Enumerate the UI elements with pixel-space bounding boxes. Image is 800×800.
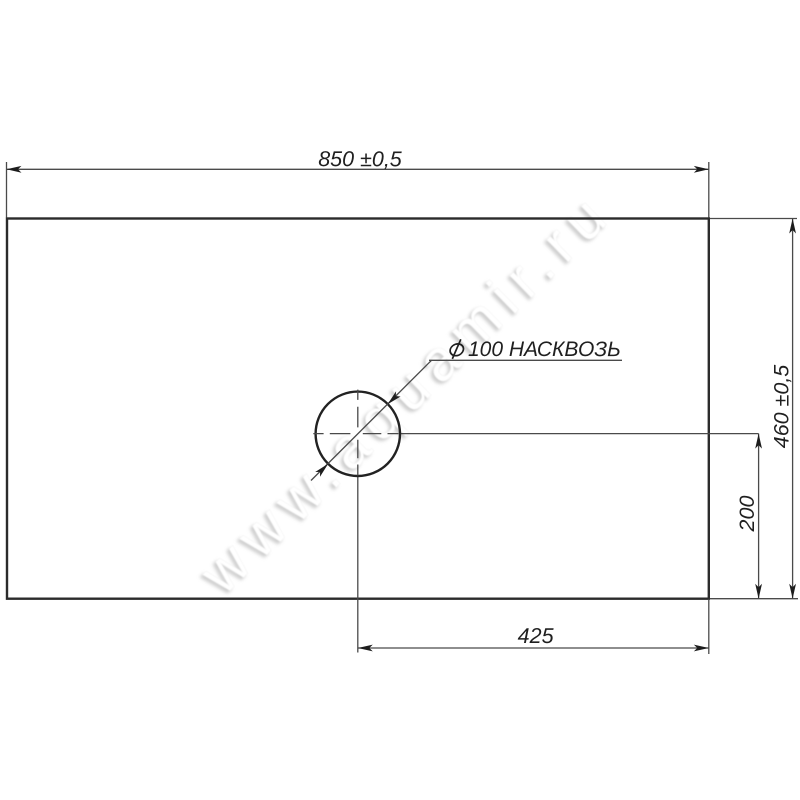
svg-text:850 ±0,5: 850 ±0,5 bbox=[318, 147, 403, 171]
svg-text:460 ±0,5: 460 ±0,5 bbox=[770, 364, 794, 449]
svg-text:200: 200 bbox=[735, 496, 759, 533]
svg-text:425: 425 bbox=[518, 624, 555, 648]
svg-text:www.aquamir.ru: www.aquamir.ru bbox=[187, 178, 625, 607]
svg-text:100 НАСКВОЗЬ: 100 НАСКВОЗЬ bbox=[468, 338, 621, 361]
